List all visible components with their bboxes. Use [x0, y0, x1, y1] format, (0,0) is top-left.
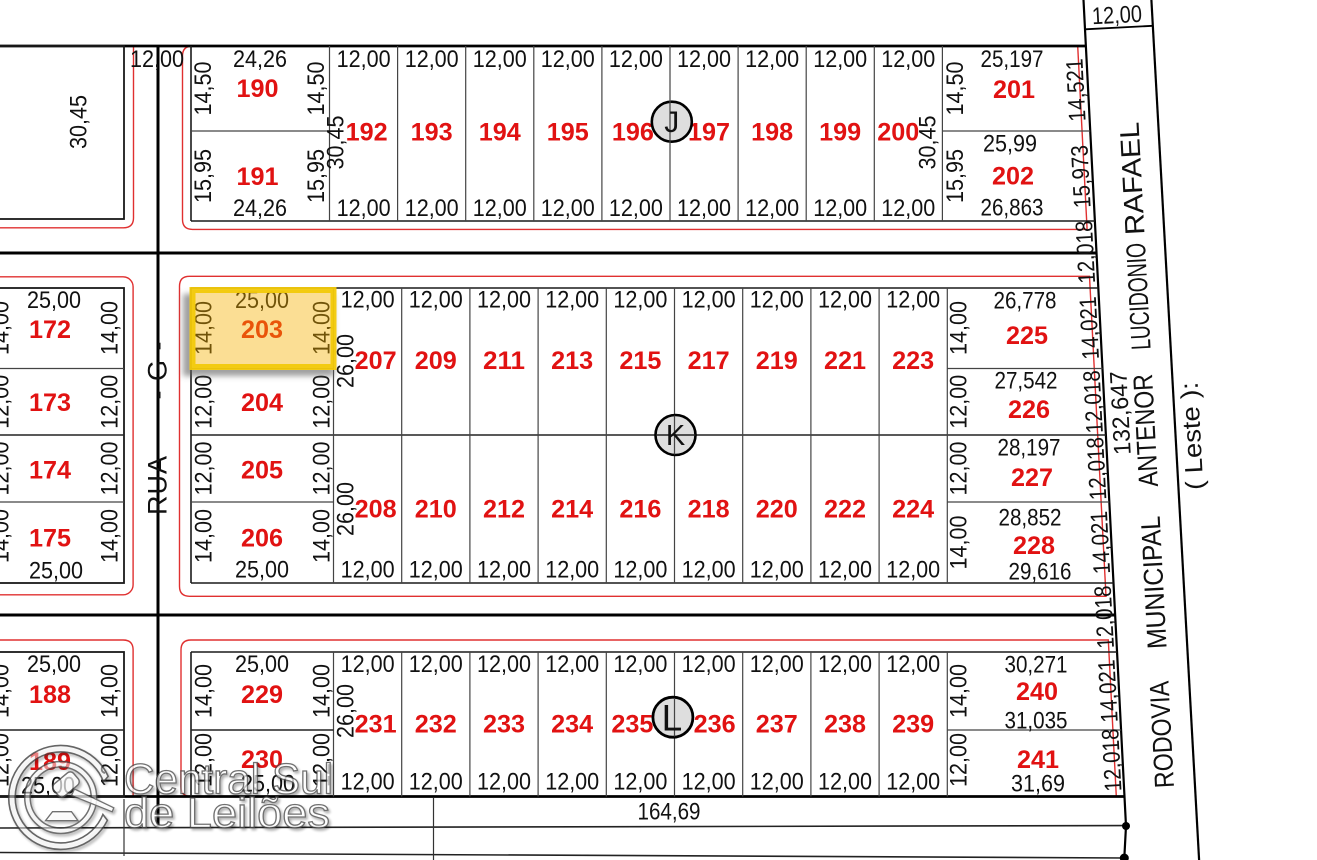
svg-text:28,197: 28,197	[998, 435, 1061, 462]
svg-text:236: 236	[694, 711, 736, 739]
svg-text:188: 188	[29, 681, 71, 709]
svg-text:14,50: 14,50	[190, 62, 217, 116]
svg-text:12,00: 12,00	[613, 651, 667, 678]
svg-text:206: 206	[241, 525, 283, 553]
svg-text:12,00: 12,00	[881, 195, 935, 222]
svg-text:RAFAEL: RAFAEL	[1114, 121, 1151, 235]
svg-text:12,00: 12,00	[545, 557, 599, 584]
svg-text:12,00: 12,00	[191, 442, 218, 496]
svg-text:208: 208	[355, 496, 397, 524]
svg-text:12,00: 12,00	[609, 46, 663, 73]
svg-text:12,00: 12,00	[609, 195, 663, 222]
svg-text:12,00: 12,00	[946, 442, 973, 496]
svg-text:220: 220	[756, 496, 798, 524]
svg-text:12,018: 12,018	[1079, 370, 1109, 434]
svg-text:15,95: 15,95	[942, 149, 969, 203]
svg-text:K: K	[666, 420, 686, 452]
svg-text:200: 200	[877, 119, 919, 147]
svg-text:233: 233	[483, 711, 525, 739]
svg-text:12,018: 12,018	[1097, 728, 1127, 792]
svg-text:239: 239	[892, 711, 934, 739]
svg-text:12,00: 12,00	[682, 557, 736, 584]
svg-text:14,021: 14,021	[1075, 296, 1105, 360]
svg-text:14,00: 14,00	[191, 509, 218, 563]
svg-text:12,00: 12,00	[677, 46, 731, 73]
svg-text:224: 224	[892, 496, 934, 524]
svg-text:12,00: 12,00	[341, 287, 395, 314]
svg-text:14,00: 14,00	[946, 664, 973, 718]
svg-text:228: 228	[1013, 532, 1055, 560]
svg-text:26,00: 26,00	[333, 334, 360, 388]
svg-text:12,00: 12,00	[541, 46, 595, 73]
svg-text:12,00: 12,00	[1091, 1, 1142, 31]
svg-text:14,00: 14,00	[0, 664, 15, 718]
svg-text:12,00: 12,00	[409, 557, 463, 584]
svg-text:14,00: 14,00	[97, 664, 124, 718]
svg-text:12,00: 12,00	[337, 195, 391, 222]
svg-text:12,018: 12,018	[1071, 220, 1101, 284]
svg-text:12,00: 12,00	[191, 375, 218, 429]
svg-text:12,00: 12,00	[946, 733, 973, 787]
svg-text:14,50: 14,50	[942, 62, 969, 116]
svg-text:229: 229	[241, 681, 283, 709]
svg-text:225: 225	[1006, 322, 1048, 350]
svg-text:12,018: 12,018	[1090, 585, 1120, 649]
svg-text:14,00: 14,00	[0, 301, 15, 355]
svg-text:26,00: 26,00	[333, 482, 360, 536]
svg-text:15,973: 15,973	[1066, 144, 1096, 208]
svg-text:12,00: 12,00	[130, 46, 184, 73]
svg-text:12,00: 12,00	[745, 195, 799, 222]
svg-text:14,00: 14,00	[97, 301, 124, 355]
svg-text:217: 217	[688, 347, 730, 375]
svg-text:12,00: 12,00	[886, 557, 940, 584]
svg-text:12,018: 12,018	[1082, 436, 1112, 500]
svg-text:209: 209	[415, 347, 457, 375]
svg-text:12,00: 12,00	[409, 287, 463, 314]
svg-text:204: 204	[241, 389, 283, 417]
svg-text:12,00: 12,00	[477, 769, 531, 796]
svg-text:( Leste ):: ( Leste ):	[1176, 381, 1210, 490]
svg-text:12,00: 12,00	[97, 733, 124, 787]
svg-text:12,00: 12,00	[613, 769, 667, 796]
svg-text:12,00: 12,00	[946, 375, 973, 429]
svg-text:25,197: 25,197	[981, 46, 1044, 73]
svg-text:24,26: 24,26	[233, 46, 287, 73]
svg-text:12,00: 12,00	[750, 557, 804, 584]
svg-text:14,521: 14,521	[1061, 58, 1091, 122]
svg-text:12,00: 12,00	[477, 287, 531, 314]
svg-text:12,00: 12,00	[881, 46, 935, 73]
svg-text:174: 174	[29, 457, 71, 485]
svg-text:12,00: 12,00	[341, 651, 395, 678]
svg-text:14,021: 14,021	[1086, 510, 1116, 574]
svg-text:12,00: 12,00	[341, 769, 395, 796]
svg-text:193: 193	[411, 119, 453, 147]
svg-text:12,00: 12,00	[886, 287, 940, 314]
svg-text:14,00: 14,00	[309, 509, 336, 563]
svg-text:12,00: 12,00	[409, 651, 463, 678]
svg-text:12,00: 12,00	[405, 46, 459, 73]
svg-text:15,95: 15,95	[190, 149, 217, 203]
svg-text:216: 216	[619, 496, 661, 524]
svg-text:12,00: 12,00	[97, 375, 124, 429]
svg-text:26,00: 26,00	[333, 684, 360, 738]
svg-text:LUCIDONIO: LUCIDONIO	[1120, 242, 1157, 350]
svg-text:25,00: 25,00	[27, 651, 81, 678]
svg-text:201: 201	[993, 76, 1035, 104]
svg-text:234: 234	[551, 711, 593, 739]
svg-text:25,00: 25,00	[235, 651, 289, 678]
svg-text:12,00: 12,00	[818, 651, 872, 678]
svg-text:12,00: 12,00	[886, 769, 940, 796]
svg-text:25,00: 25,00	[235, 557, 289, 584]
svg-text:25,00: 25,00	[27, 287, 81, 314]
svg-text:12,00: 12,00	[473, 195, 527, 222]
svg-text:12,00: 12,00	[0, 375, 15, 429]
svg-text:de Leilões: de Leilões	[124, 790, 330, 838]
svg-text:31,035: 31,035	[1005, 708, 1068, 735]
svg-text:12,00: 12,00	[409, 769, 463, 796]
svg-text:12,00: 12,00	[613, 287, 667, 314]
svg-text:191: 191	[237, 163, 279, 191]
svg-text:214: 214	[551, 496, 593, 524]
svg-text:218: 218	[688, 496, 730, 524]
svg-text:12,00: 12,00	[818, 769, 872, 796]
svg-text:210: 210	[415, 496, 457, 524]
svg-text:12,00: 12,00	[341, 557, 395, 584]
svg-text:12,00: 12,00	[682, 769, 736, 796]
svg-text:12,00: 12,00	[405, 195, 459, 222]
svg-text:12,00: 12,00	[750, 769, 804, 796]
svg-text:12,00: 12,00	[682, 651, 736, 678]
svg-text:213: 213	[551, 347, 593, 375]
svg-text:12,00: 12,00	[813, 195, 867, 222]
svg-text:215: 215	[619, 347, 661, 375]
svg-text:227: 227	[1011, 464, 1053, 492]
svg-text:190: 190	[237, 75, 279, 103]
svg-text:14,00: 14,00	[97, 509, 124, 563]
svg-text:175: 175	[29, 525, 71, 553]
svg-text:211: 211	[483, 347, 525, 375]
svg-text:12,00: 12,00	[0, 442, 15, 496]
svg-text:219: 219	[756, 347, 798, 375]
svg-text:14,021: 14,021	[1093, 659, 1123, 723]
svg-text:26,863: 26,863	[981, 195, 1044, 222]
svg-text:232: 232	[415, 711, 457, 739]
svg-text:238: 238	[824, 711, 866, 739]
svg-text:30,45: 30,45	[66, 95, 93, 149]
svg-text:12,00: 12,00	[473, 46, 527, 73]
svg-text:14,50: 14,50	[303, 62, 330, 116]
svg-text:205: 205	[241, 457, 283, 485]
svg-text:12,00: 12,00	[477, 557, 531, 584]
svg-text:212: 212	[483, 496, 525, 524]
svg-text:197: 197	[688, 119, 730, 147]
svg-text:12,00: 12,00	[541, 195, 595, 222]
svg-text:172: 172	[29, 316, 71, 344]
svg-text:12,00: 12,00	[97, 442, 124, 496]
svg-text:12,00: 12,00	[682, 287, 736, 314]
svg-text:12,00: 12,00	[613, 557, 667, 584]
svg-text:226: 226	[1008, 396, 1050, 424]
svg-text:195: 195	[547, 119, 589, 147]
svg-text:194: 194	[479, 119, 521, 147]
svg-text:132,647: 132,647	[1105, 370, 1136, 455]
svg-text:RUA: RUA	[143, 455, 173, 515]
svg-text:199: 199	[819, 119, 861, 147]
svg-text:24,26: 24,26	[233, 195, 287, 222]
svg-text:RODOVIA: RODOVIA	[1143, 680, 1180, 789]
svg-text:30,45: 30,45	[915, 116, 942, 170]
svg-text:196: 196	[612, 119, 654, 147]
svg-text:12,00: 12,00	[477, 651, 531, 678]
svg-text:25,00: 25,00	[29, 558, 83, 585]
svg-text:12,00: 12,00	[677, 195, 731, 222]
svg-text:240: 240	[1016, 678, 1058, 706]
svg-text:192: 192	[346, 119, 388, 147]
svg-text:14,00: 14,00	[0, 509, 15, 563]
svg-text:237: 237	[756, 711, 798, 739]
svg-text:12,00: 12,00	[813, 46, 867, 73]
svg-text:12,00: 12,00	[886, 651, 940, 678]
svg-text:J: J	[664, 106, 679, 139]
svg-text:12,00: 12,00	[545, 769, 599, 796]
svg-text:222: 222	[824, 496, 866, 524]
svg-text:14,00: 14,00	[946, 301, 973, 355]
svg-text:14,00: 14,00	[191, 664, 218, 718]
svg-text:12,00: 12,00	[818, 557, 872, 584]
svg-text:12,00: 12,00	[545, 651, 599, 678]
svg-text:12,00: 12,00	[750, 287, 804, 314]
svg-text:- G -: - G -	[143, 341, 173, 400]
svg-text:221: 221	[824, 347, 866, 375]
svg-text:26,778: 26,778	[994, 288, 1057, 315]
svg-text:31,69: 31,69	[1011, 771, 1065, 798]
svg-text:30,271: 30,271	[1005, 652, 1068, 679]
svg-text:235: 235	[611, 711, 653, 739]
svg-text:164,69: 164,69	[638, 799, 701, 826]
svg-text:231: 231	[355, 711, 397, 739]
svg-text:14,00: 14,00	[946, 516, 973, 570]
svg-text:202: 202	[992, 163, 1034, 191]
svg-text:28,852: 28,852	[999, 505, 1062, 532]
svg-text:12,00: 12,00	[545, 287, 599, 314]
svg-text:207: 207	[355, 347, 397, 375]
svg-text:14,00: 14,00	[309, 664, 336, 718]
svg-text:12,00: 12,00	[750, 651, 804, 678]
svg-text:27,542: 27,542	[995, 368, 1058, 395]
svg-text:173: 173	[29, 389, 71, 417]
svg-text:198: 198	[751, 119, 793, 147]
svg-text:223: 223	[892, 347, 934, 375]
svg-text:12,00: 12,00	[818, 287, 872, 314]
svg-text:12,00: 12,00	[309, 442, 336, 496]
svg-text:L: L	[662, 698, 683, 739]
svg-text:12,00: 12,00	[337, 46, 391, 73]
svg-text:12,00: 12,00	[745, 46, 799, 73]
svg-text:25,99: 25,99	[983, 131, 1037, 158]
svg-text:29,616: 29,616	[1009, 559, 1072, 586]
svg-text:12,00: 12,00	[309, 375, 336, 429]
